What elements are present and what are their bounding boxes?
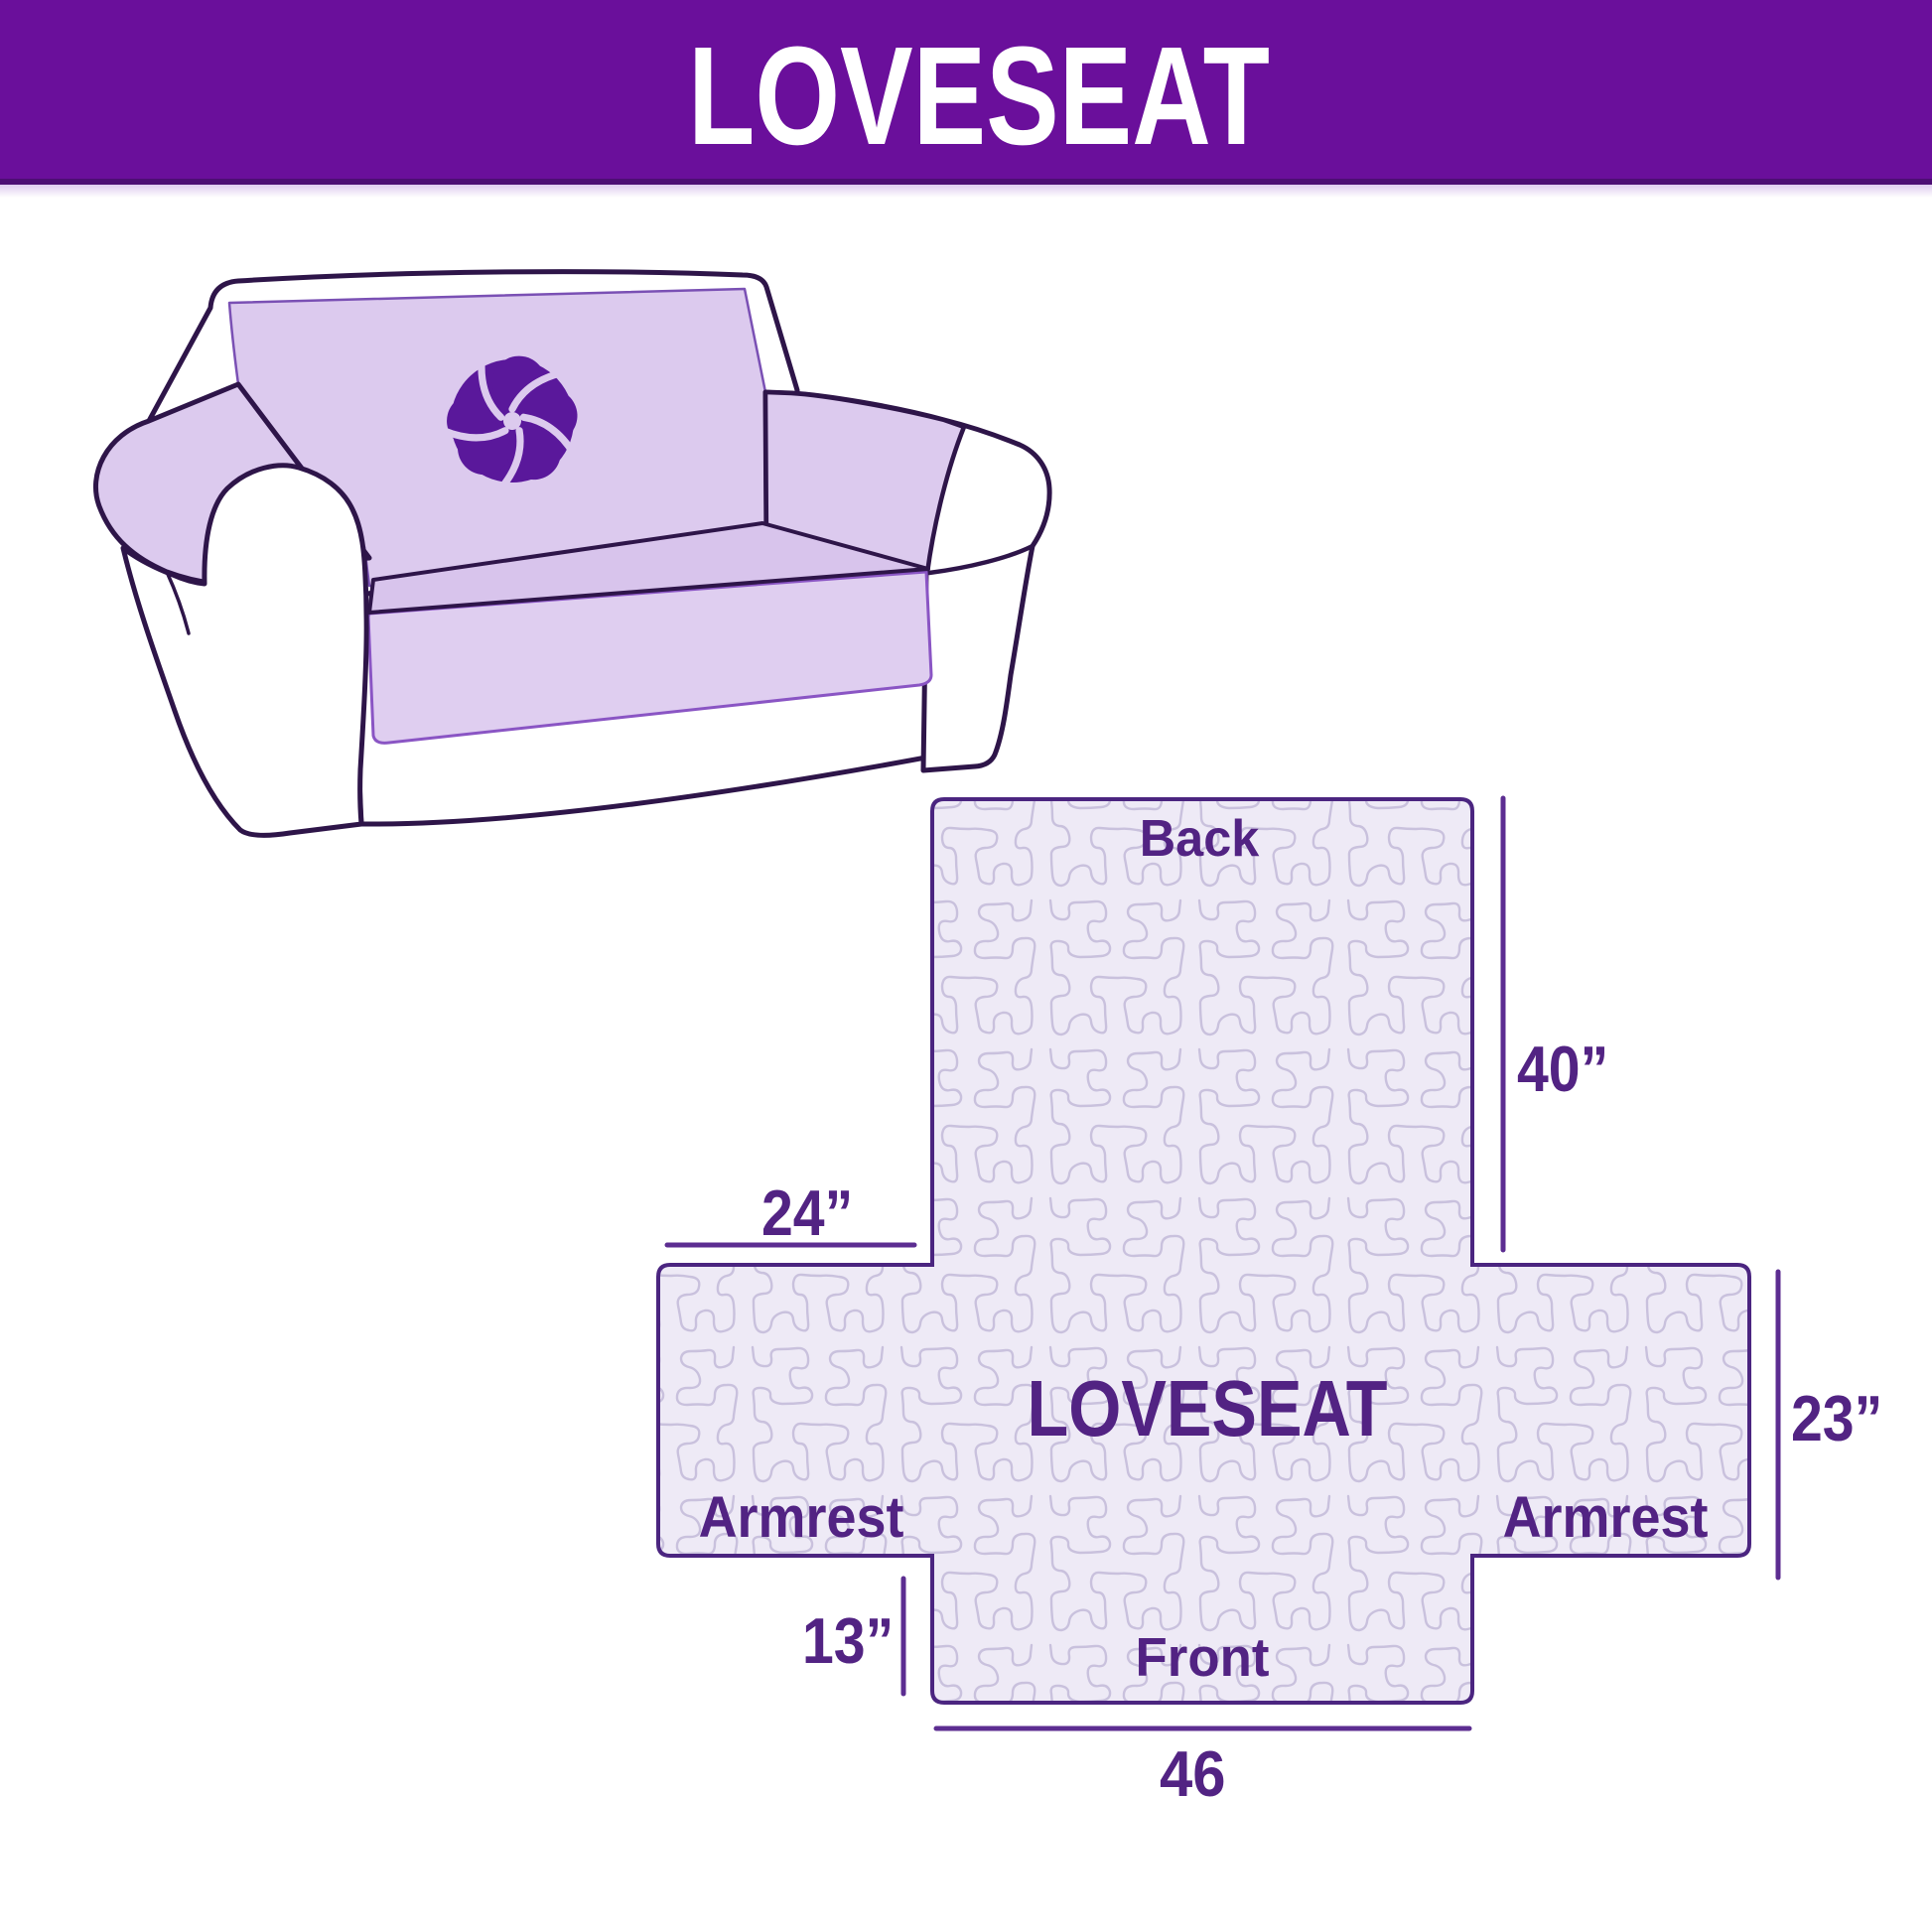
- svg-text:Front: Front: [1136, 1627, 1270, 1688]
- svg-text:Armrest: Armrest: [1503, 1484, 1709, 1549]
- svg-text:Back: Back: [1140, 809, 1260, 867]
- svg-text:LOVESEAT: LOVESEAT: [688, 17, 1270, 174]
- svg-text:Armrest: Armrest: [699, 1484, 904, 1549]
- svg-text:40”: 40”: [1517, 1034, 1608, 1105]
- svg-text:23”: 23”: [1791, 1383, 1882, 1454]
- svg-text:LOVESEAT: LOVESEAT: [1028, 1364, 1388, 1452]
- svg-text:13”: 13”: [802, 1605, 894, 1677]
- svg-text:24”: 24”: [761, 1177, 853, 1249]
- svg-text:46: 46: [1160, 1738, 1226, 1811]
